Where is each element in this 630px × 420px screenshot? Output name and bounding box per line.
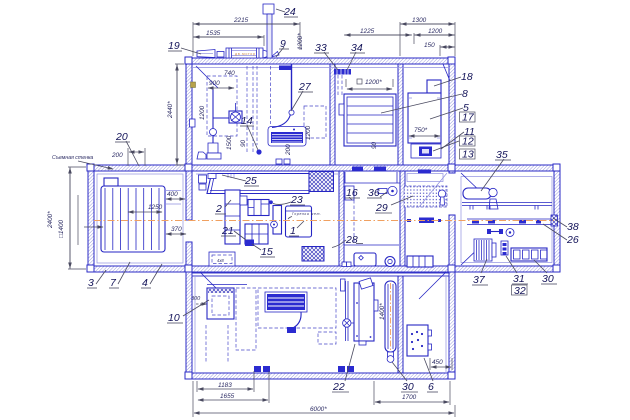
svg-text:34: 34 bbox=[351, 42, 363, 54]
svg-text:22: 22 bbox=[332, 381, 345, 393]
svg-text:450: 450 bbox=[432, 359, 443, 366]
svg-text:29: 29 bbox=[375, 202, 388, 214]
svg-text:1: 1 bbox=[290, 225, 296, 237]
svg-text:19: 19 bbox=[168, 40, 180, 52]
svg-text:2215: 2215 bbox=[233, 17, 249, 24]
svg-text:90: 90 bbox=[240, 139, 247, 147]
svg-text:13: 13 bbox=[462, 149, 474, 161]
svg-text:Съемная стенка: Съемная стенка bbox=[52, 155, 93, 161]
svg-text:10: 10 bbox=[168, 312, 180, 324]
svg-text:1200: 1200 bbox=[305, 125, 312, 140]
svg-text:740: 740 bbox=[224, 70, 235, 77]
svg-text:17: 17 bbox=[462, 112, 475, 124]
svg-text:35: 35 bbox=[496, 149, 508, 161]
svg-text:31: 31 bbox=[513, 273, 525, 285]
svg-text:200: 200 bbox=[285, 144, 292, 156]
svg-text:6000*: 6000* bbox=[310, 406, 327, 413]
svg-text:370: 370 bbox=[171, 226, 182, 233]
svg-text:□1400: □1400 bbox=[58, 219, 65, 238]
svg-text:12: 12 bbox=[462, 136, 474, 148]
svg-text:1200: 1200 bbox=[428, 28, 443, 35]
svg-text:300: 300 bbox=[191, 296, 201, 302]
svg-text:7: 7 bbox=[110, 277, 117, 289]
svg-text:27: 27 bbox=[298, 81, 312, 93]
svg-text:8: 8 bbox=[462, 88, 468, 100]
svg-text:1183: 1183 bbox=[218, 382, 232, 389]
svg-text:38: 38 bbox=[567, 221, 579, 233]
svg-text:2: 2 bbox=[215, 203, 222, 215]
svg-text:1400*: 1400* bbox=[379, 303, 386, 320]
svg-text:дв.мотор: дв.мотор bbox=[235, 52, 255, 56]
svg-text:16: 16 bbox=[346, 187, 358, 199]
svg-text:1500: 1500 bbox=[226, 135, 233, 150]
svg-text:9: 9 bbox=[280, 38, 286, 50]
svg-text:6: 6 bbox=[428, 381, 434, 393]
svg-text:900: 900 bbox=[209, 80, 220, 87]
svg-text:1225: 1225 bbox=[360, 28, 375, 35]
svg-text:20: 20 bbox=[115, 131, 128, 143]
svg-text:26: 26 bbox=[566, 234, 579, 246]
svg-text:1250: 1250 bbox=[148, 204, 163, 211]
svg-text:28: 28 bbox=[345, 234, 358, 246]
svg-text:25: 25 bbox=[244, 175, 257, 187]
svg-text:15: 15 bbox=[261, 246, 273, 258]
svg-text:1535: 1535 bbox=[206, 30, 221, 37]
svg-text:1300: 1300 bbox=[412, 17, 427, 24]
svg-text:1200*: 1200* bbox=[297, 33, 304, 50]
svg-text:750*: 750* bbox=[414, 127, 428, 134]
svg-text:36: 36 bbox=[368, 187, 380, 199]
svg-text:32: 32 bbox=[514, 285, 526, 297]
svg-text:150: 150 bbox=[424, 42, 435, 49]
svg-text:2440*: 2440* bbox=[167, 101, 174, 119]
svg-text:4х8: 4х8 bbox=[217, 258, 224, 263]
svg-text:18: 18 bbox=[461, 71, 473, 83]
svg-text:2400*: 2400* bbox=[47, 211, 54, 229]
svg-text:1700: 1700 bbox=[402, 394, 417, 401]
svg-text:21: 21 bbox=[221, 225, 234, 237]
svg-text:3: 3 bbox=[88, 277, 94, 289]
svg-text:30: 30 bbox=[402, 381, 414, 393]
svg-text:33: 33 bbox=[315, 42, 327, 54]
svg-text:400: 400 bbox=[167, 191, 178, 198]
svg-text:90: 90 bbox=[371, 141, 378, 149]
svg-text:30: 30 bbox=[542, 273, 554, 285]
svg-text:1200*: 1200* bbox=[365, 79, 382, 86]
svg-text:1200: 1200 bbox=[199, 105, 206, 120]
svg-text:37: 37 bbox=[473, 274, 486, 286]
svg-text:23: 23 bbox=[290, 194, 303, 206]
svg-text:4: 4 bbox=[142, 277, 148, 289]
svg-text:24: 24 bbox=[283, 6, 296, 18]
svg-text:Горелка мет.: Горелка мет. bbox=[292, 212, 321, 216]
svg-text:200: 200 bbox=[111, 152, 123, 159]
svg-text:1655: 1655 bbox=[220, 393, 235, 400]
svg-text:14: 14 bbox=[241, 115, 253, 127]
